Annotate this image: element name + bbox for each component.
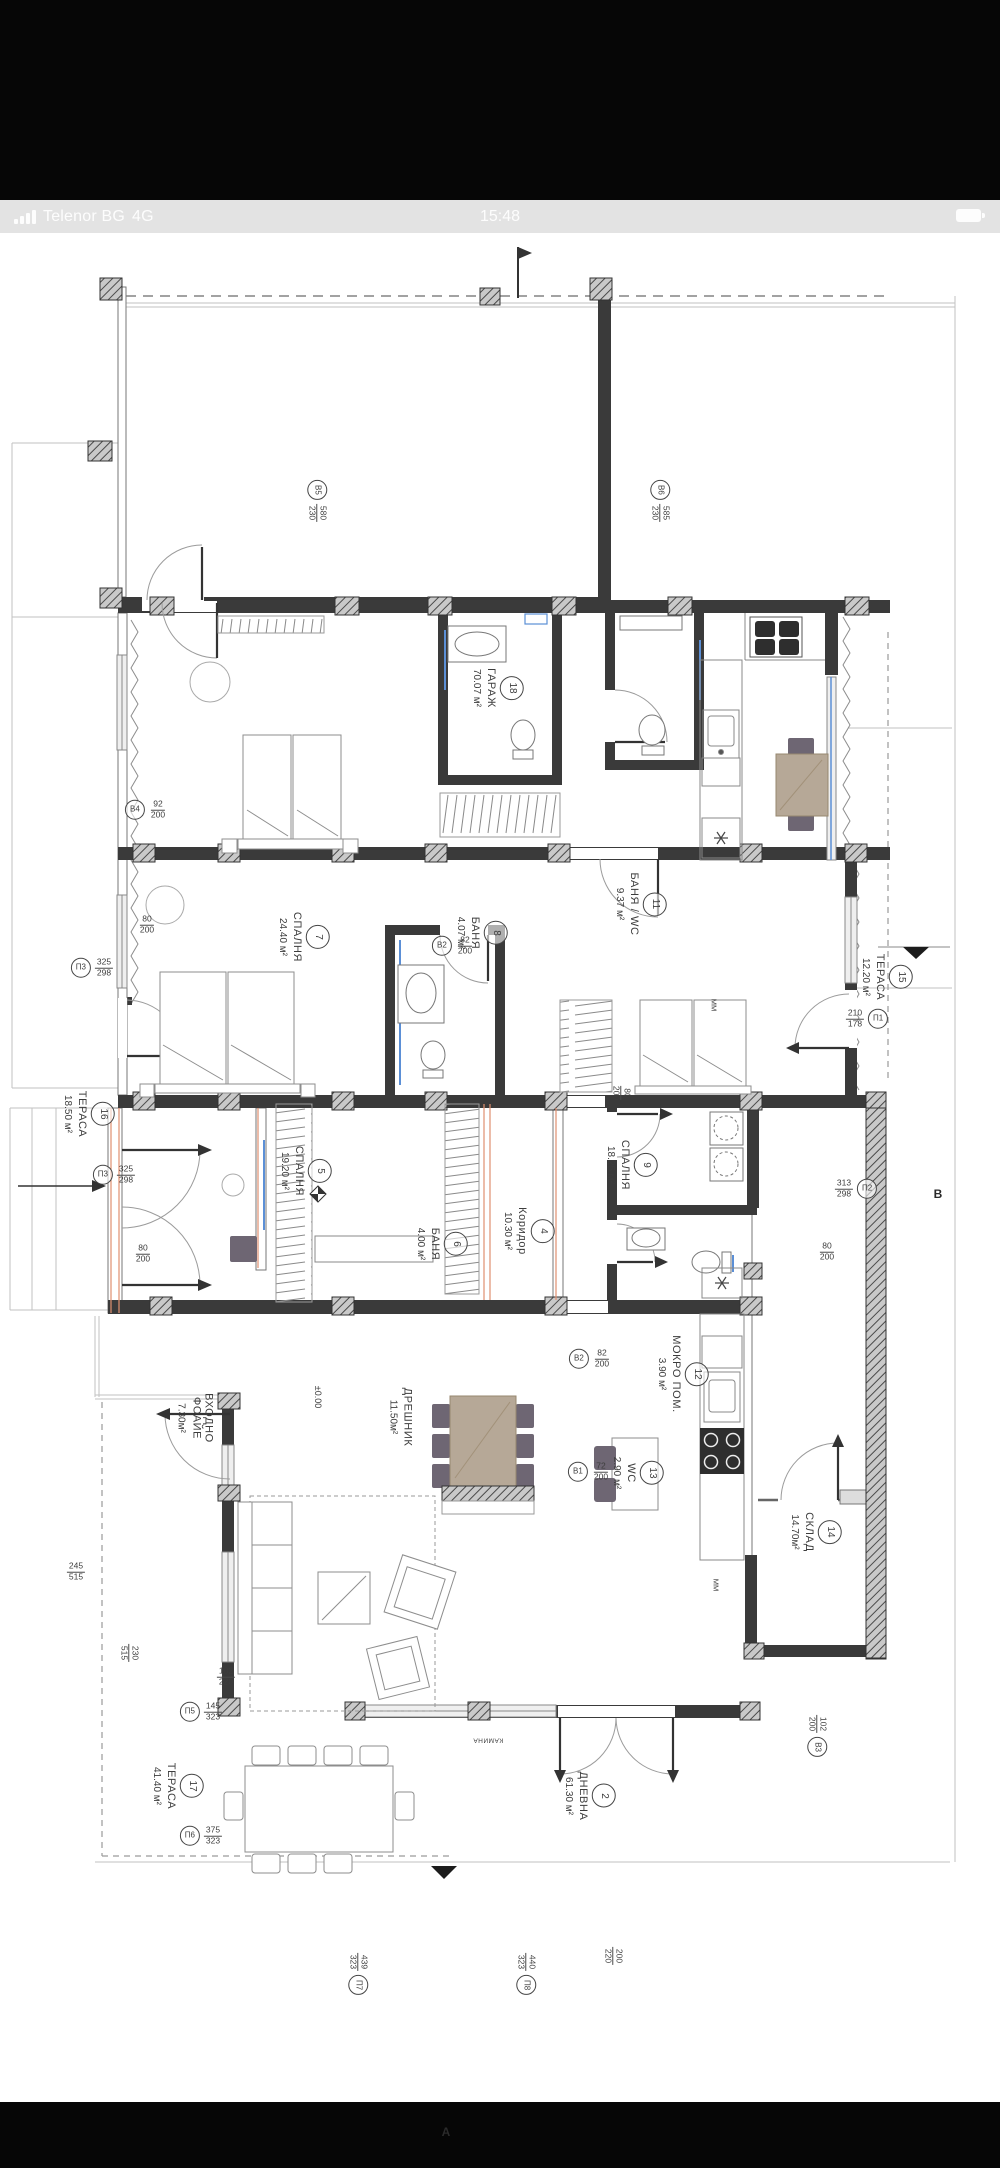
window-mark-p6: П6 375323 xyxy=(180,1826,222,1847)
window-mark-p7: 439323 П7 xyxy=(348,1953,369,1995)
window-mark-p5: П5 145323 xyxy=(180,1702,222,1723)
door-mark-v1: В1 72200 xyxy=(568,1462,610,1483)
room-label-bedroom-7: 7СПАЛНЯ24.40 м² xyxy=(276,912,330,962)
room-label-bath-wc-11: 11БАНЯ / WC9.37 м² xyxy=(613,872,667,935)
living-room-furniture xyxy=(238,1396,658,1711)
window-mark-p3-b: П3 325298 xyxy=(93,1165,135,1186)
battery-icon xyxy=(956,209,986,223)
dim-door-80-200-a: 80200 xyxy=(138,915,156,936)
window-mark-p8: 440323 П8 xyxy=(516,1953,537,1995)
room-label-laundry-12: 12МОКРО ПОМ.3.90 м² xyxy=(655,1335,709,1413)
fireplace xyxy=(442,1486,534,1514)
floor-plan-drawing xyxy=(0,233,1000,2102)
window-mark-p3-a: П3 325298 xyxy=(71,958,113,979)
dishwasher-label-upper: ММ xyxy=(710,999,719,1012)
room-label-bedroom-9: 9СПАЛНЯ18.25 м² xyxy=(604,1140,658,1190)
dim-door-80-200-c: 80200 xyxy=(818,1242,836,1263)
dishwasher-label-lower: ММ xyxy=(712,1579,721,1592)
dim-door-200-220: 200220 xyxy=(603,1947,624,1965)
dim-245-515: 245515 xyxy=(67,1562,85,1583)
boundary-lines xyxy=(10,296,955,1862)
room-label-terrace-16: 16ТЕРАСА18.50 м² xyxy=(61,1091,115,1137)
section-mark-b: В xyxy=(934,1187,943,1201)
bottom-letterbox xyxy=(0,2102,1000,2168)
door-mark-v2-a: В2 82200 xyxy=(432,936,474,957)
sofa-set xyxy=(238,1496,456,1711)
room-label-wc-13: 13WC2.90 м² xyxy=(610,1457,664,1489)
clock-label: 15:48 xyxy=(0,208,1000,226)
room-label-terrace-15: 15ТЕРАСА12.20 м² xyxy=(859,954,913,1000)
room-label-living-room-2: 2ДНЕВНА61.30 м² xyxy=(562,1772,616,1821)
dim-door-80-200-d: 80200 xyxy=(134,1244,152,1265)
room-label-garage: 18ГАРАЖ70.07 м² xyxy=(470,668,524,708)
section-mark-a: А xyxy=(442,2125,451,2139)
phone-screenshot: Telenor BG 4G 15:48 xyxy=(0,0,1000,2168)
dim-door-80-200-b: 80200 xyxy=(611,1084,632,1102)
dining-set xyxy=(432,1396,534,1488)
window-mark-p2: 313298 П2 xyxy=(835,1179,877,1200)
room-label-entrance-foyer: ВХОДНО ФОАЙЕ7.30м² xyxy=(176,1389,215,1447)
window-mark-p1: 210178 П1 xyxy=(846,1009,888,1030)
fireplace-label: КАМИНА xyxy=(473,1737,503,1744)
room-label-walk-in-closet: ДРЕШНИК11.50м² xyxy=(387,1388,414,1447)
room-label-storage-14: 14СКЛАД14.70м² xyxy=(788,1512,842,1552)
door-mark-v5: В5 580230 xyxy=(307,480,328,522)
room-label-terrace-17: 17ТЕРАСА41.40 м² xyxy=(150,1763,204,1809)
room-label-bath-6: 6БАНЯ4.00 м² xyxy=(414,1228,468,1261)
door-mark-v2-b: В2 82200 xyxy=(569,1349,611,1370)
room-label-bedroom-5: 5СПАЛНЯ19.20 м² xyxy=(278,1146,332,1196)
dim-door-102-220: 102220 xyxy=(217,1667,235,1688)
door-mark-v4: В4 92200 xyxy=(125,800,167,821)
floor-plan: 18ГАРАЖ70.07 м² 7СПАЛНЯ24.40 м² 8БАНЯ4.0… xyxy=(0,233,1000,2102)
terrace-dining xyxy=(224,1746,414,1873)
dim-230-515: 230515 xyxy=(119,1644,140,1662)
door-mark-v3: 102200 В3 xyxy=(807,1715,828,1757)
room-label-corridor-4: 4Коридор10.30 м² xyxy=(501,1207,555,1255)
kitchen-upper xyxy=(700,613,828,860)
status-bar: Telenor BG 4G 15:48 xyxy=(0,200,1000,233)
foyer-furniture xyxy=(18,1180,433,1262)
top-letterbox xyxy=(0,0,1000,200)
door-mark-v6: В6 585230 xyxy=(650,480,671,522)
level-mark-label: ±0.00 xyxy=(313,1386,323,1408)
